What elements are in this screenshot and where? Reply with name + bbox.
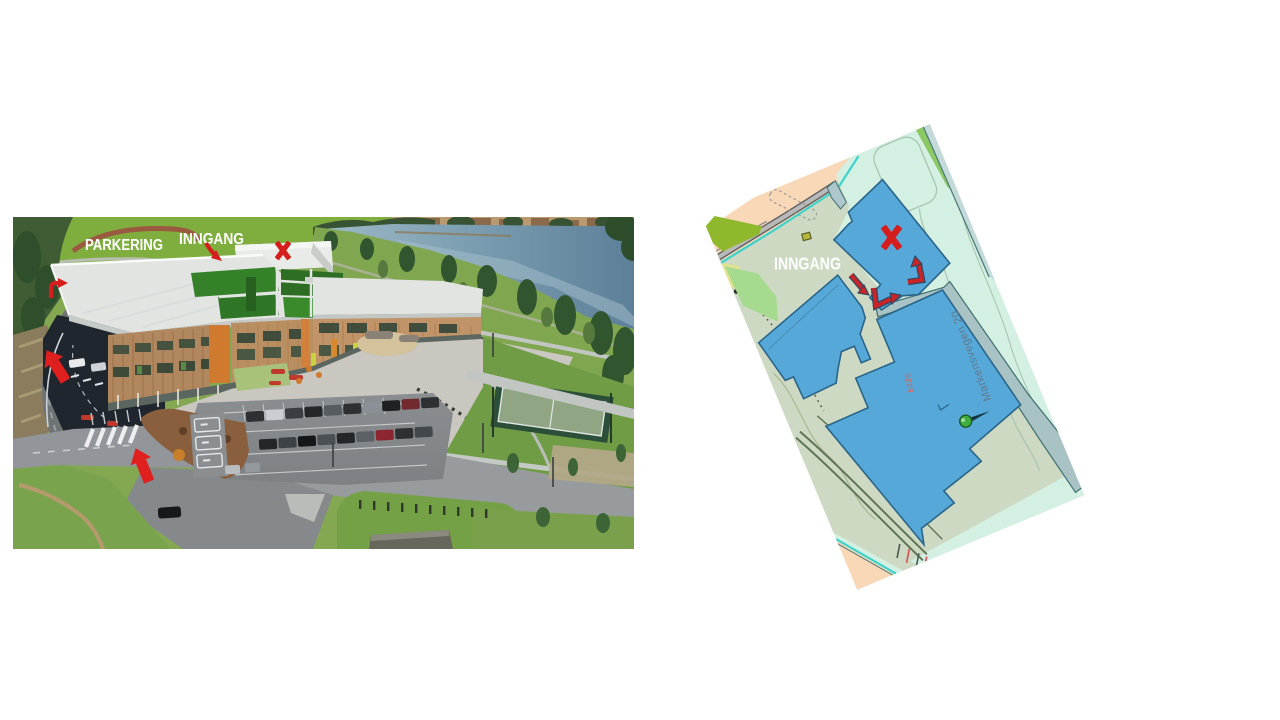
svg-text:PARKERING: PARKERING bbox=[85, 237, 163, 254]
svg-text:INNGANG: INNGANG bbox=[774, 254, 841, 274]
svg-text:INNGANG: INNGANG bbox=[179, 231, 244, 248]
